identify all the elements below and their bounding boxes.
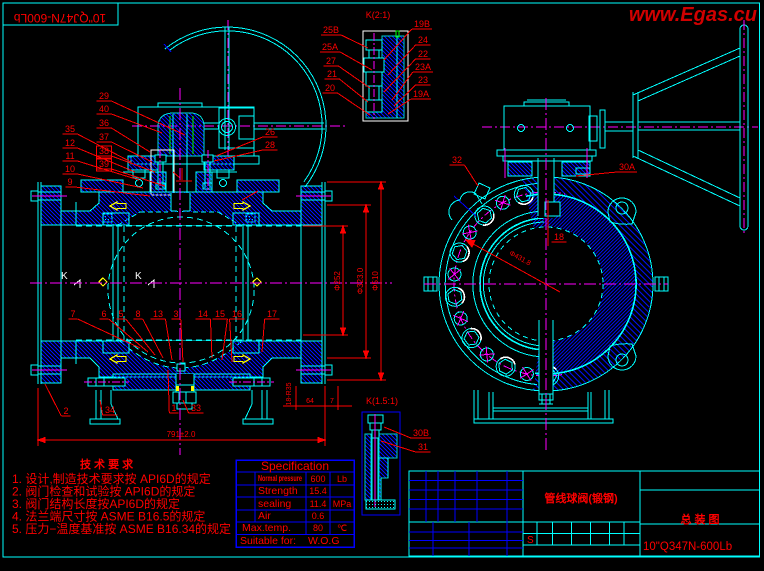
svg-text:32: 32 [452,155,462,165]
svg-text:24: 24 [418,35,428,45]
svg-text:16: 16 [232,309,242,319]
svg-text:28: 28 [265,140,275,150]
svg-text:36: 36 [99,118,109,128]
svg-text:600: 600 [310,474,325,484]
svg-text:31: 31 [418,442,428,452]
svg-text:www.Egas.cu: www.Egas.cu [629,4,757,26]
svg-text:15: 15 [215,309,225,319]
svg-text:21: 21 [327,69,337,79]
svg-text:Suitable for:: Suitable for: [240,535,296,547]
svg-text:技 术 要 求: 技 术 要 求 [80,457,134,471]
svg-text:0.6: 0.6 [312,511,325,521]
svg-text:Φ323.0: Φ323.0 [356,267,365,294]
svg-text:7: 7 [70,309,75,319]
svg-text:Strength: Strength [258,485,298,497]
svg-text:K: K [61,271,68,282]
svg-text:22: 22 [418,49,428,59]
svg-text:6: 6 [101,309,106,319]
svg-text:23: 23 [418,75,428,85]
svg-text:Normal pressure: Normal pressure [258,474,302,483]
svg-text:Lb: Lb [337,474,347,484]
svg-text:30A: 30A [619,162,635,172]
svg-text:10"QJ47N-600Lb: 10"QJ47N-600Lb [14,11,107,25]
svg-text:18-R35: 18-R35 [286,382,293,405]
svg-text:10: 10 [65,164,75,174]
svg-text:29: 29 [99,91,109,101]
svg-text:23A: 23A [415,62,431,72]
svg-text:80: 80 [313,523,323,533]
svg-text:13: 13 [153,309,163,319]
svg-text:Φ510: Φ510 [371,271,380,291]
svg-text:40: 40 [99,104,109,114]
svg-text:17: 17 [267,309,277,319]
svg-text:7: 7 [330,398,334,405]
svg-text:8: 8 [135,309,140,319]
svg-text:25B: 25B [323,25,339,35]
svg-text:管线球阀(锻钢): 管线球阀(锻钢) [544,491,618,505]
svg-text:5: 5 [118,309,123,319]
svg-text:25A: 25A [322,42,338,52]
svg-text:总 装 图: 总 装 图 [680,512,719,526]
svg-text:1: 1 [171,403,176,413]
svg-text:791±2.0: 791±2.0 [167,430,196,439]
svg-text:26: 26 [265,127,275,137]
svg-text:Specification: Specification [261,459,329,473]
svg-text:3: 3 [173,309,178,319]
svg-text:19A: 19A [413,89,429,99]
svg-text:K(2:1): K(2:1) [366,10,391,20]
svg-text:11: 11 [65,151,74,161]
svg-text:MPa: MPa [333,499,352,509]
svg-text:K(1.5:1): K(1.5:1) [366,396,398,406]
svg-text:2: 2 [63,406,68,416]
svg-text:10"Q347N-600Lb: 10"Q347N-600Lb [643,541,732,553]
svg-text:W.O.G: W.O.G [308,535,340,547]
svg-text:Φ252: Φ252 [333,271,342,291]
svg-text:K: K [135,271,142,282]
svg-text:14: 14 [198,309,208,319]
svg-text:12: 12 [65,138,75,148]
svg-text:20: 20 [325,83,335,93]
svg-text:11.4: 11.4 [310,499,327,509]
svg-text:15.4: 15.4 [309,486,327,496]
svg-text:18: 18 [554,232,564,242]
svg-text:S: S [527,535,534,546]
svg-text:30B: 30B [413,428,429,438]
svg-text:35: 35 [65,124,75,134]
svg-text:℃: ℃ [337,523,347,533]
svg-text:27: 27 [326,56,336,66]
svg-text:33: 33 [191,403,201,413]
svg-text:9: 9 [67,177,72,187]
svg-text:34: 34 [105,405,115,415]
svg-text:sealing: sealing [258,498,291,510]
svg-text:64: 64 [306,398,314,405]
svg-text:Max.temp.: Max.temp. [242,522,291,534]
svg-text:37: 37 [99,132,109,142]
svg-text:Air: Air [258,510,271,522]
svg-text:5. 压力−温度基准按 ASME B16.34的规定: 5. 压力−温度基准按 ASME B16.34的规定 [12,521,231,536]
svg-text:19B: 19B [414,19,430,29]
